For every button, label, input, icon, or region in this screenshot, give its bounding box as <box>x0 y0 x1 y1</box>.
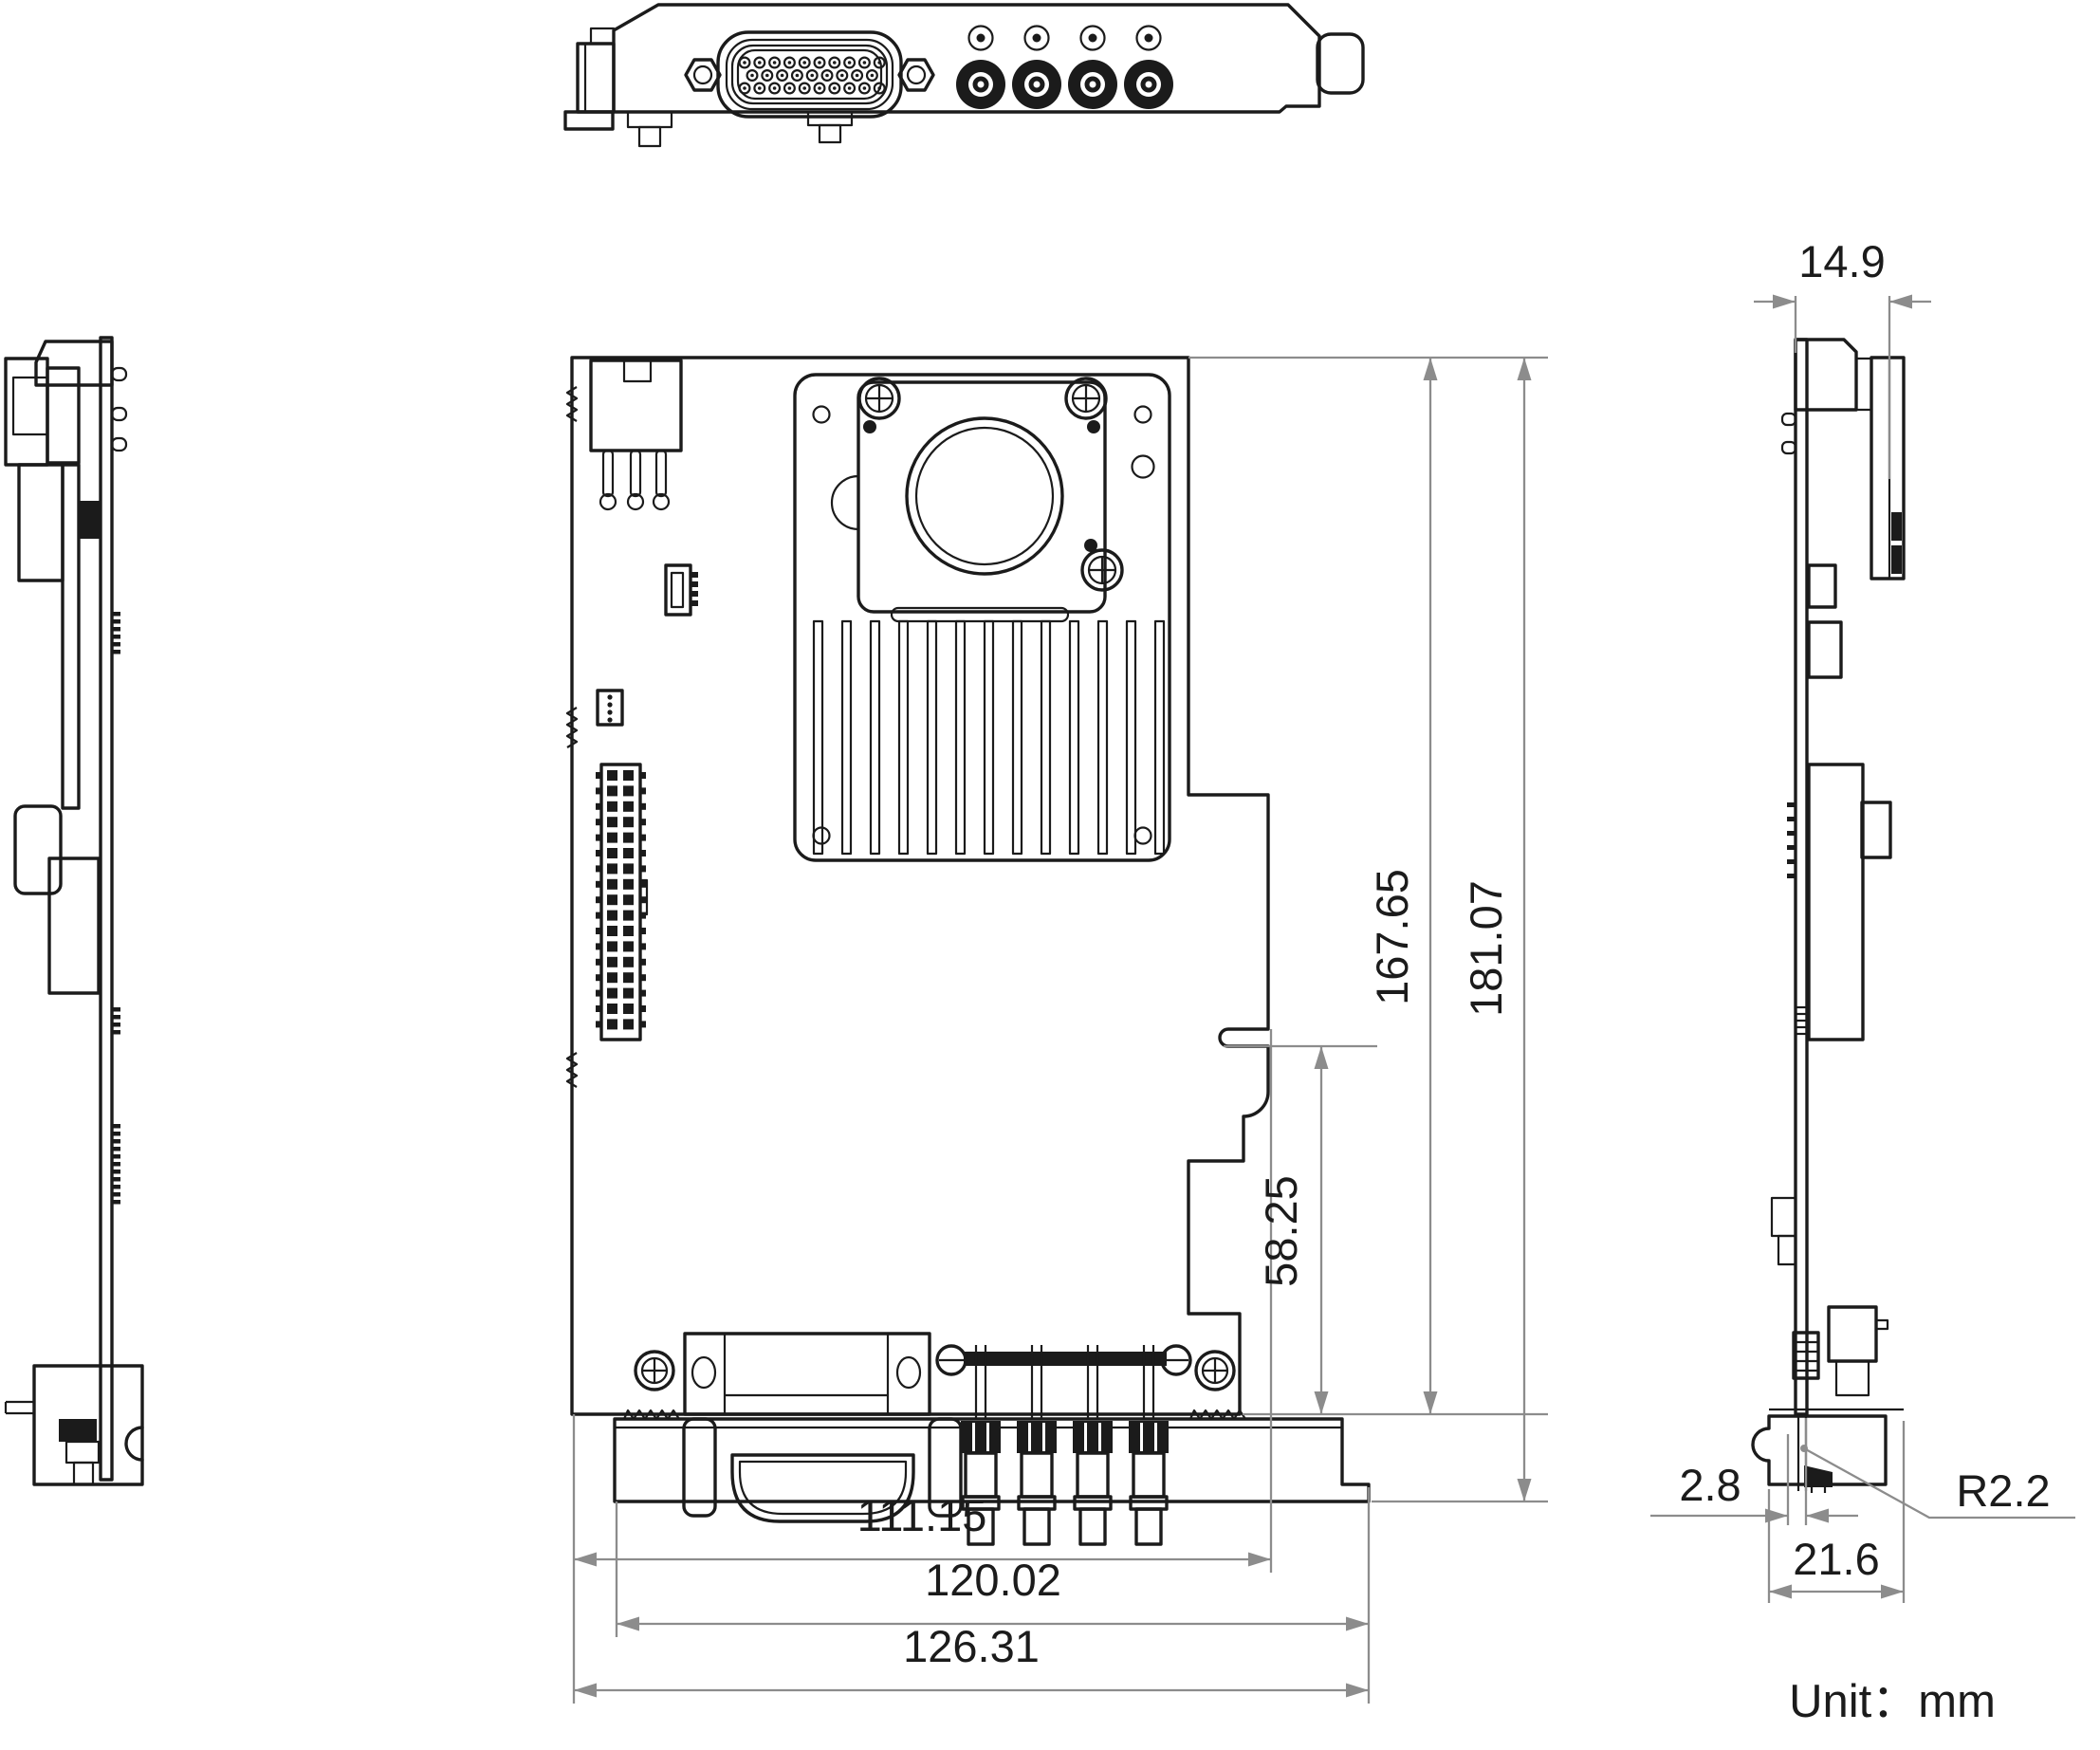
fan-opening-inner <box>916 428 1053 564</box>
main-front-view <box>567 358 1369 1544</box>
left-view-board-edge <box>101 338 112 1480</box>
top-view-dsub-connector <box>686 32 933 117</box>
fan-opening-outer <box>907 418 1062 574</box>
dsub-jackscrew-left <box>686 60 720 90</box>
dimension-bracket-width: 120.02 <box>617 1555 1369 1624</box>
left-view-pins <box>112 368 126 451</box>
dimension-overall-height: 181.07 <box>1461 358 1524 1501</box>
dimension-overall-width: 126.31 <box>574 1621 1369 1690</box>
right-view-bottom-parts <box>1772 1198 1888 1395</box>
right-view-bracket-foot <box>1753 1409 1904 1493</box>
dim-label-overall-height: 181.07 <box>1461 880 1511 1017</box>
dim-label-bracket-width: 120.02 <box>925 1555 1061 1605</box>
dimension-board-height: 167.65 <box>1367 358 1430 1414</box>
dimension-foot-width: 21.6 <box>1769 1421 1904 1603</box>
small-4pin-component <box>666 565 698 615</box>
fan-shroud <box>858 382 1105 612</box>
dsub-pin-field <box>740 58 885 94</box>
dimension-corner-radius: R2.2 <box>1800 1445 2075 1518</box>
dim-label-notch-height: 58.25 <box>1256 1175 1306 1287</box>
left-view-component-blocks <box>6 359 101 993</box>
dsub-rear-body <box>685 1334 930 1414</box>
bnc-connectors-front <box>961 1345 1169 1544</box>
dim-label-board-width: 111.15 <box>857 1490 987 1540</box>
heatsink-fan-assembly <box>795 375 1170 860</box>
power-connector <box>591 360 681 509</box>
unit-label: Unit：mm <box>1789 1676 1996 1727</box>
top-view-bnc-connectors <box>956 27 1173 110</box>
top-view-end-tab <box>1317 34 1363 93</box>
dim-label-overall-width: 126.31 <box>903 1621 1040 1671</box>
right-view-pins <box>1782 414 1796 453</box>
right-view-bracket-plate <box>1871 358 1904 579</box>
small-header-connector <box>598 691 622 725</box>
top-view-left-clip <box>565 28 614 129</box>
right-view-board-edge <box>1796 340 1807 1414</box>
right-view-component-blocks <box>1809 565 1890 1040</box>
left-side-view <box>6 338 142 1484</box>
dim-label-foot-offset: 2.8 <box>1679 1460 1741 1510</box>
left-foot-radius-cutout <box>126 1428 142 1460</box>
pin-header-2x17 <box>596 764 647 1040</box>
heatsink-fins <box>814 621 1164 854</box>
right-side-view <box>1753 340 1904 1493</box>
dim-label-board-height: 167.65 <box>1367 869 1417 1005</box>
dim-label-corner-radius: R2.2 <box>1956 1465 2050 1516</box>
technical-drawing-page: 167.65 181.07 58.25 111.15 120.02 126.31 <box>0 0 2100 1750</box>
fan-screws <box>859 378 1122 590</box>
dsub-jackscrew-right <box>899 60 933 90</box>
right-view-top-tab <box>1796 340 1856 410</box>
dim-label-foot-width: 21.6 <box>1793 1534 1879 1584</box>
left-view-bracket-foot <box>6 1366 142 1484</box>
dim-label-side-top-width: 14.9 <box>1798 236 1885 286</box>
top-view <box>565 5 1363 146</box>
